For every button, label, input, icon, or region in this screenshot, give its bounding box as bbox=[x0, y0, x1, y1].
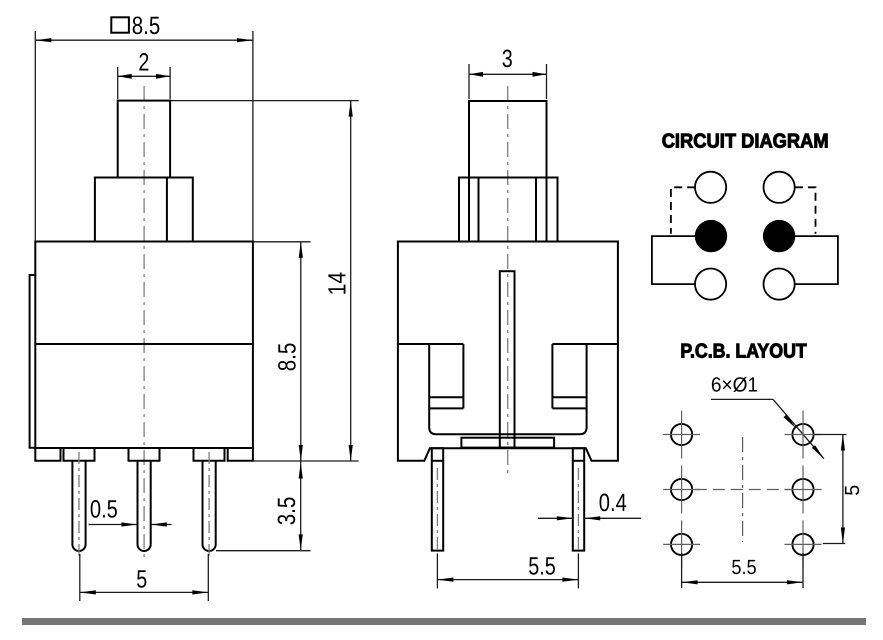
svg-text:5: 5 bbox=[136, 565, 147, 593]
svg-text:5: 5 bbox=[841, 485, 864, 496]
svg-text:5.5: 5.5 bbox=[731, 556, 756, 579]
svg-text:CIRCUIT DIAGRAM: CIRCUIT DIAGRAM bbox=[662, 130, 829, 152]
svg-text:8.5: 8.5 bbox=[273, 343, 301, 372]
svg-text:0.5: 0.5 bbox=[90, 496, 118, 524]
svg-text:2: 2 bbox=[138, 48, 149, 76]
svg-text:6×Ø1: 6×Ø1 bbox=[711, 374, 758, 397]
svg-text:5.5: 5.5 bbox=[528, 553, 556, 581]
svg-text:3.5: 3.5 bbox=[273, 497, 301, 526]
svg-text:0.4: 0.4 bbox=[599, 489, 627, 517]
svg-text:14: 14 bbox=[324, 272, 352, 296]
svg-text:P.C.B. LAYOUT: P.C.B. LAYOUT bbox=[680, 340, 806, 362]
svg-text:8.5: 8.5 bbox=[132, 12, 161, 40]
svg-text:3: 3 bbox=[502, 45, 513, 73]
